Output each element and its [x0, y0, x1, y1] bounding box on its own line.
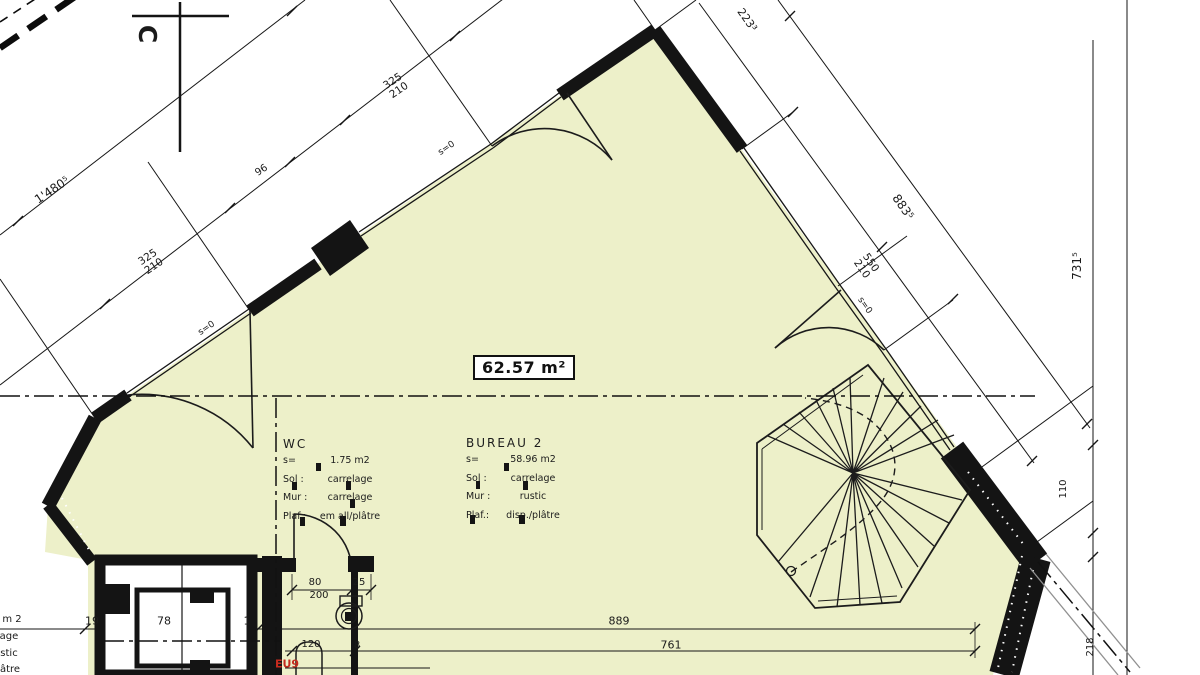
- room-title: WC: [283, 437, 395, 451]
- room-attr-value: carrelage: [317, 474, 383, 485]
- room-info-row: Mur :carrelage: [283, 492, 395, 511]
- room-rows: s=1.75 m2Sol :carrelageMur :carrelagePla…: [283, 455, 395, 529]
- room-attr-value: 1.75 m2: [317, 455, 383, 466]
- room-info-row: Sol :carrelage: [283, 474, 395, 493]
- room-info-wc: WC s=1.75 m2Sol :carrelageMur :carrelage…: [283, 437, 395, 529]
- floor-plan: 62.57 m² WC s=1.75 m2Sol :carrelageMur :…: [0, 0, 1200, 675]
- room-attr-value: disp./plâtre: [500, 510, 566, 521]
- room-attr-value: 58.96 m2: [500, 454, 566, 465]
- room-attr-key: Sol :: [466, 473, 500, 484]
- room-info-row: Sol :carrelage: [466, 473, 578, 492]
- room-info-bureau: BUREAU 2 s=58.96 m2Sol :carrelageMur :ru…: [466, 436, 578, 528]
- room-title: BUREAU 2: [466, 436, 578, 450]
- room-attr-key: Mur :: [283, 492, 317, 503]
- room-info-row: s=1.75 m2: [283, 455, 395, 474]
- floor-plan-canvas: [0, 0, 1200, 675]
- room-attr-value: rustic: [500, 491, 566, 502]
- room-info-row: Mur :rustic: [466, 491, 578, 510]
- area-label: 62.57 m²: [473, 355, 575, 380]
- room-info-row: Plaf.:disp./plâtre: [466, 510, 578, 529]
- room-rows: s=58.96 m2Sol :carrelageMur :rusticPlaf.…: [466, 454, 578, 528]
- room-attr-value: carrelage: [317, 492, 383, 503]
- room-info-row: Plaf.:em all/plâtre: [283, 511, 395, 530]
- room-attr-key: Sol :: [283, 474, 317, 485]
- room-info-row: s=58.96 m2: [466, 454, 578, 473]
- section-marker: [132, 2, 229, 152]
- room-attr-key: Plaf.:: [283, 511, 317, 522]
- room-attr-value: em all/plâtre: [317, 511, 383, 522]
- room-attr-value: carrelage: [500, 473, 566, 484]
- room-attr-key: Plaf.:: [466, 510, 500, 521]
- room-attr-key: s=: [283, 455, 317, 466]
- property-line: [0, 0, 82, 48]
- room-attr-key: Mur :: [466, 491, 500, 502]
- room-attr-key: s=: [466, 454, 500, 465]
